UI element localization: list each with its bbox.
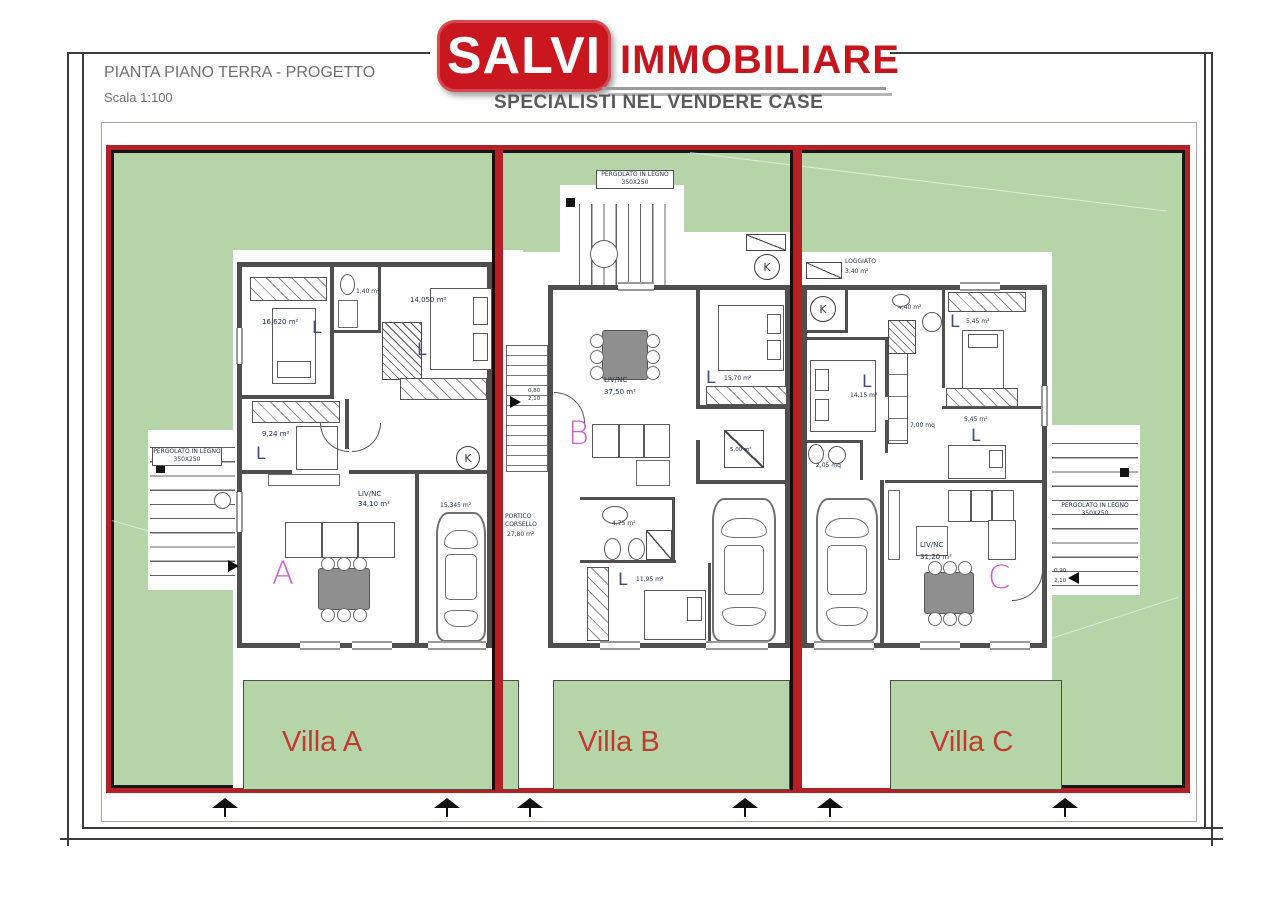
side-table [636,460,670,486]
room-letter: L [312,318,321,338]
lot-divider-ab [492,150,503,790]
toilet [604,538,621,560]
shower [338,300,358,328]
sofa [948,490,1014,522]
window [920,641,960,650]
chair [958,561,972,575]
bed-pillow [815,369,829,391]
room-name-label: LIV/NC [604,376,627,384]
room-letter: L [618,570,627,590]
entrance-marker [212,798,238,808]
chair [321,608,335,622]
wall [580,560,676,563]
entrance-marker [517,798,543,808]
dining-table [924,572,974,614]
bed-pillow [767,340,781,360]
room-area-label: 11,95 m² [636,576,663,583]
car-cabin [724,545,765,595]
boiler-k-symbol: K [456,446,480,470]
room-letter: L [971,426,980,446]
sheet-frame-inner-bottom [82,827,1223,829]
entrance-marker [434,798,460,808]
sheet-frame-inner-right [1204,52,1206,829]
chair [928,561,942,575]
wall [672,497,675,563]
wardrobe [706,386,787,405]
window [352,641,392,650]
wall [349,470,492,474]
chair [928,612,942,626]
room-name-label: LIV/NC [358,490,381,498]
wall [415,474,419,648]
wardrobe [948,292,1026,312]
bed-pillow [473,333,488,361]
room-area-label: 14,15 m² [850,392,877,399]
logo-brand-suffix-text: IMMOBILIARE [620,38,900,83]
sofa [285,522,395,558]
car-windshield [721,518,767,538]
car [712,498,776,642]
floor-plan-page: PIANTA PIANO TERRA - PROGETTO Scala 1:10… [0,0,1280,905]
room-letter: L [417,340,426,360]
chair [646,334,660,348]
sheet-frame-inner-left [82,52,84,829]
chair [590,366,604,380]
bed-pillow [687,597,702,621]
wall [330,330,381,333]
window [990,641,1030,650]
bed-pillow [968,334,998,348]
wall [708,563,711,643]
wardrobe [400,378,487,400]
wall [942,290,945,388]
pergola-post [1120,468,1129,477]
garage-door [706,641,768,650]
shower [646,530,672,560]
garage-door [428,641,486,650]
pergola-dim-text: 350X250 [1081,510,1108,517]
entrance-arrow [510,396,521,408]
chair [943,612,957,626]
wall [807,440,860,443]
room-letter: L [706,368,715,388]
room-name-label: LOGGIATO [845,258,876,265]
ramp-mark [806,262,842,279]
logo-tagline: SPECIALISTI NEL VENDERE CASE [494,92,823,114]
room-area-label: 15,345 m² [440,502,471,509]
chair [590,350,604,364]
garage-door [814,641,874,650]
sheet-frame-outer-left [67,52,69,846]
wall [696,290,700,405]
window [1041,386,1048,426]
bed-pillow [767,314,781,334]
room-letter: L [256,444,265,464]
chair [646,350,660,364]
room-area-label: 1,40 m² [356,288,380,295]
car [436,512,486,642]
dining-table [602,330,648,380]
pergola-label: PERGOLATO IN LEGNO 350X250 [1058,502,1132,519]
room-area-label: 2,05 mq [816,462,841,469]
wardrobe [252,401,340,423]
bed-pillow [815,399,829,421]
closet-column [888,352,908,444]
pergola-label-text: PERGOLATO IN LEGNO [601,171,669,178]
entrance-arrow [228,560,239,572]
garden-table [590,240,618,268]
door-width-dim: 0,90 [1054,568,1066,574]
drawing-title: PIANTA PIANO TERRA - PROGETTO [104,64,375,82]
toilet [340,274,355,295]
shower [888,320,916,354]
chair [337,557,351,571]
car [816,498,878,642]
boiler-k-symbol: K [810,296,836,322]
garden-table [214,492,231,509]
pergola-post [566,198,575,207]
sink [922,312,942,332]
entrance-arrow [1068,572,1079,584]
door-height-dim: 2,10 [1054,578,1066,584]
pergola-label-text: PERGOLATO IN LEGNO [1061,502,1129,509]
door-height-dim: 2,10 [528,396,540,402]
drawing-scale: Scala 1:100 [104,90,173,105]
wall [696,405,785,409]
room-area-label: 7,00 mq [910,422,935,429]
tv-console [268,474,340,486]
room-area-label: 31,20 m² [920,553,952,561]
wall [580,497,672,500]
window [960,282,1000,291]
room-area-label: 37,50 m² [604,388,636,396]
chair [590,334,604,348]
chair [321,557,335,571]
lot-divider-bc [790,150,802,790]
window [600,641,640,650]
bed [962,330,1004,390]
sofa [988,520,1016,560]
room-area-label: 5,45 m² [966,318,990,325]
villa-c-name: Villa C [930,726,1013,759]
wall [880,480,884,643]
chair [353,557,367,571]
pergola-label: PERGOLATO IN LEGNO 350X250 [596,170,674,189]
wardrobe [250,277,327,301]
car-cabin [827,545,866,595]
room-area-label: 9,24 m² [262,430,289,438]
chair [337,608,351,622]
room-area-label: 27,80 m² [507,531,534,538]
door-width-dim: 0,80 [528,388,540,394]
wall [242,395,334,399]
room-name-label: LIV/NC [920,541,943,549]
pergola-label-text: PERGOLATO IN LEGNO [153,448,221,455]
room-letter: L [950,312,959,332]
bed-pillow [277,361,311,378]
wall [860,440,863,480]
chair [943,561,957,575]
entrance-marker [817,798,843,808]
room-area-label: 5,45 m² [964,416,988,423]
room-area-label: 34,10 m² [358,500,390,508]
window [236,328,243,364]
bed-pillow [989,450,1003,468]
bed-pillow [473,297,488,325]
villa-a-name: Villa A [282,726,362,759]
chair [958,612,972,626]
sheet-frame-outer-bottom [60,838,1223,840]
pergola-dim-text: 350X250 [173,456,200,463]
wall [845,290,848,330]
sheet-frame-outer-right [1211,52,1213,846]
car-rear-window [826,607,868,626]
room-area-label: 16,620 m² [262,318,298,326]
pergola-dim-text: 350X250 [621,179,648,186]
car-rear-window [722,607,765,626]
entrance-marker [732,798,758,808]
bed [718,305,784,371]
wall [696,480,785,484]
villa-b-name: Villa B [578,726,660,759]
bidet [628,538,645,560]
wall [885,480,1043,483]
car-windshield [444,530,479,548]
wardrobe [946,388,1018,407]
unit-letter-c: C [988,558,1010,596]
wall [807,330,848,333]
window [300,641,340,650]
wardrobe [587,567,609,641]
room-area-label: 14,050 m² [410,296,446,304]
logo-underline [602,87,886,90]
wall [696,440,700,480]
car-windshield [825,518,869,538]
window [618,282,654,291]
chair [646,366,660,380]
toilet [892,294,910,307]
room-letter: L [862,372,871,392]
car-cabin [445,554,476,599]
room-area-label: 3,40 m² [845,268,869,275]
room-name-label: PORTICO CORSELLO [505,513,549,529]
room-area-label: 4,75 m² [612,520,636,527]
wall [807,337,885,340]
dining-table [318,568,370,610]
window [236,492,243,532]
bed [948,445,1006,479]
car-rear-window [444,610,477,627]
toilet [808,444,824,464]
room-area-label: 15,70 m² [724,375,751,382]
portico-steps [506,345,548,472]
entrance-marker [1052,798,1078,808]
wall [378,267,381,330]
pergola-structure [568,204,668,288]
pergola-label: PERGOLATO IN LEGNO 350X250 [152,447,222,466]
sofa [592,424,670,458]
boiler-k-symbol: K [754,254,780,280]
stairs [382,322,422,380]
bed [644,590,706,640]
logo-brand-text: SALVI [447,26,601,86]
room-area-label: 5,00 m² [730,447,752,453]
ramp-mark [746,234,786,251]
logo-badge: SALVI [437,20,611,92]
chair [353,608,367,622]
unit-letter-a: A [272,554,294,592]
tv-console [888,490,900,560]
